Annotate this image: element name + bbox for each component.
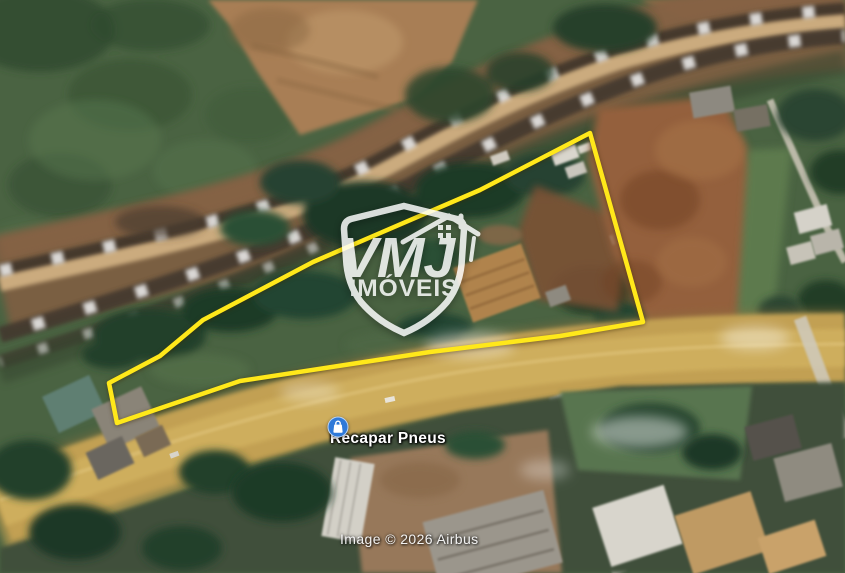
map-canvas[interactable]: VMJ IMÓVEIS Recapar Pneus Image © 2026 A… [0,0,845,573]
place-label[interactable]: Recapar Pneus [327,416,446,448]
watermark-subtitle: IMÓVEIS [349,274,458,302]
shopping-pin-icon[interactable] [327,416,349,438]
brand-watermark: VMJ IMÓVEIS [0,0,845,573]
map-attribution: Image © 2026 Airbus [340,531,479,547]
attribution-text: Image © 2026 Airbus [340,531,479,547]
